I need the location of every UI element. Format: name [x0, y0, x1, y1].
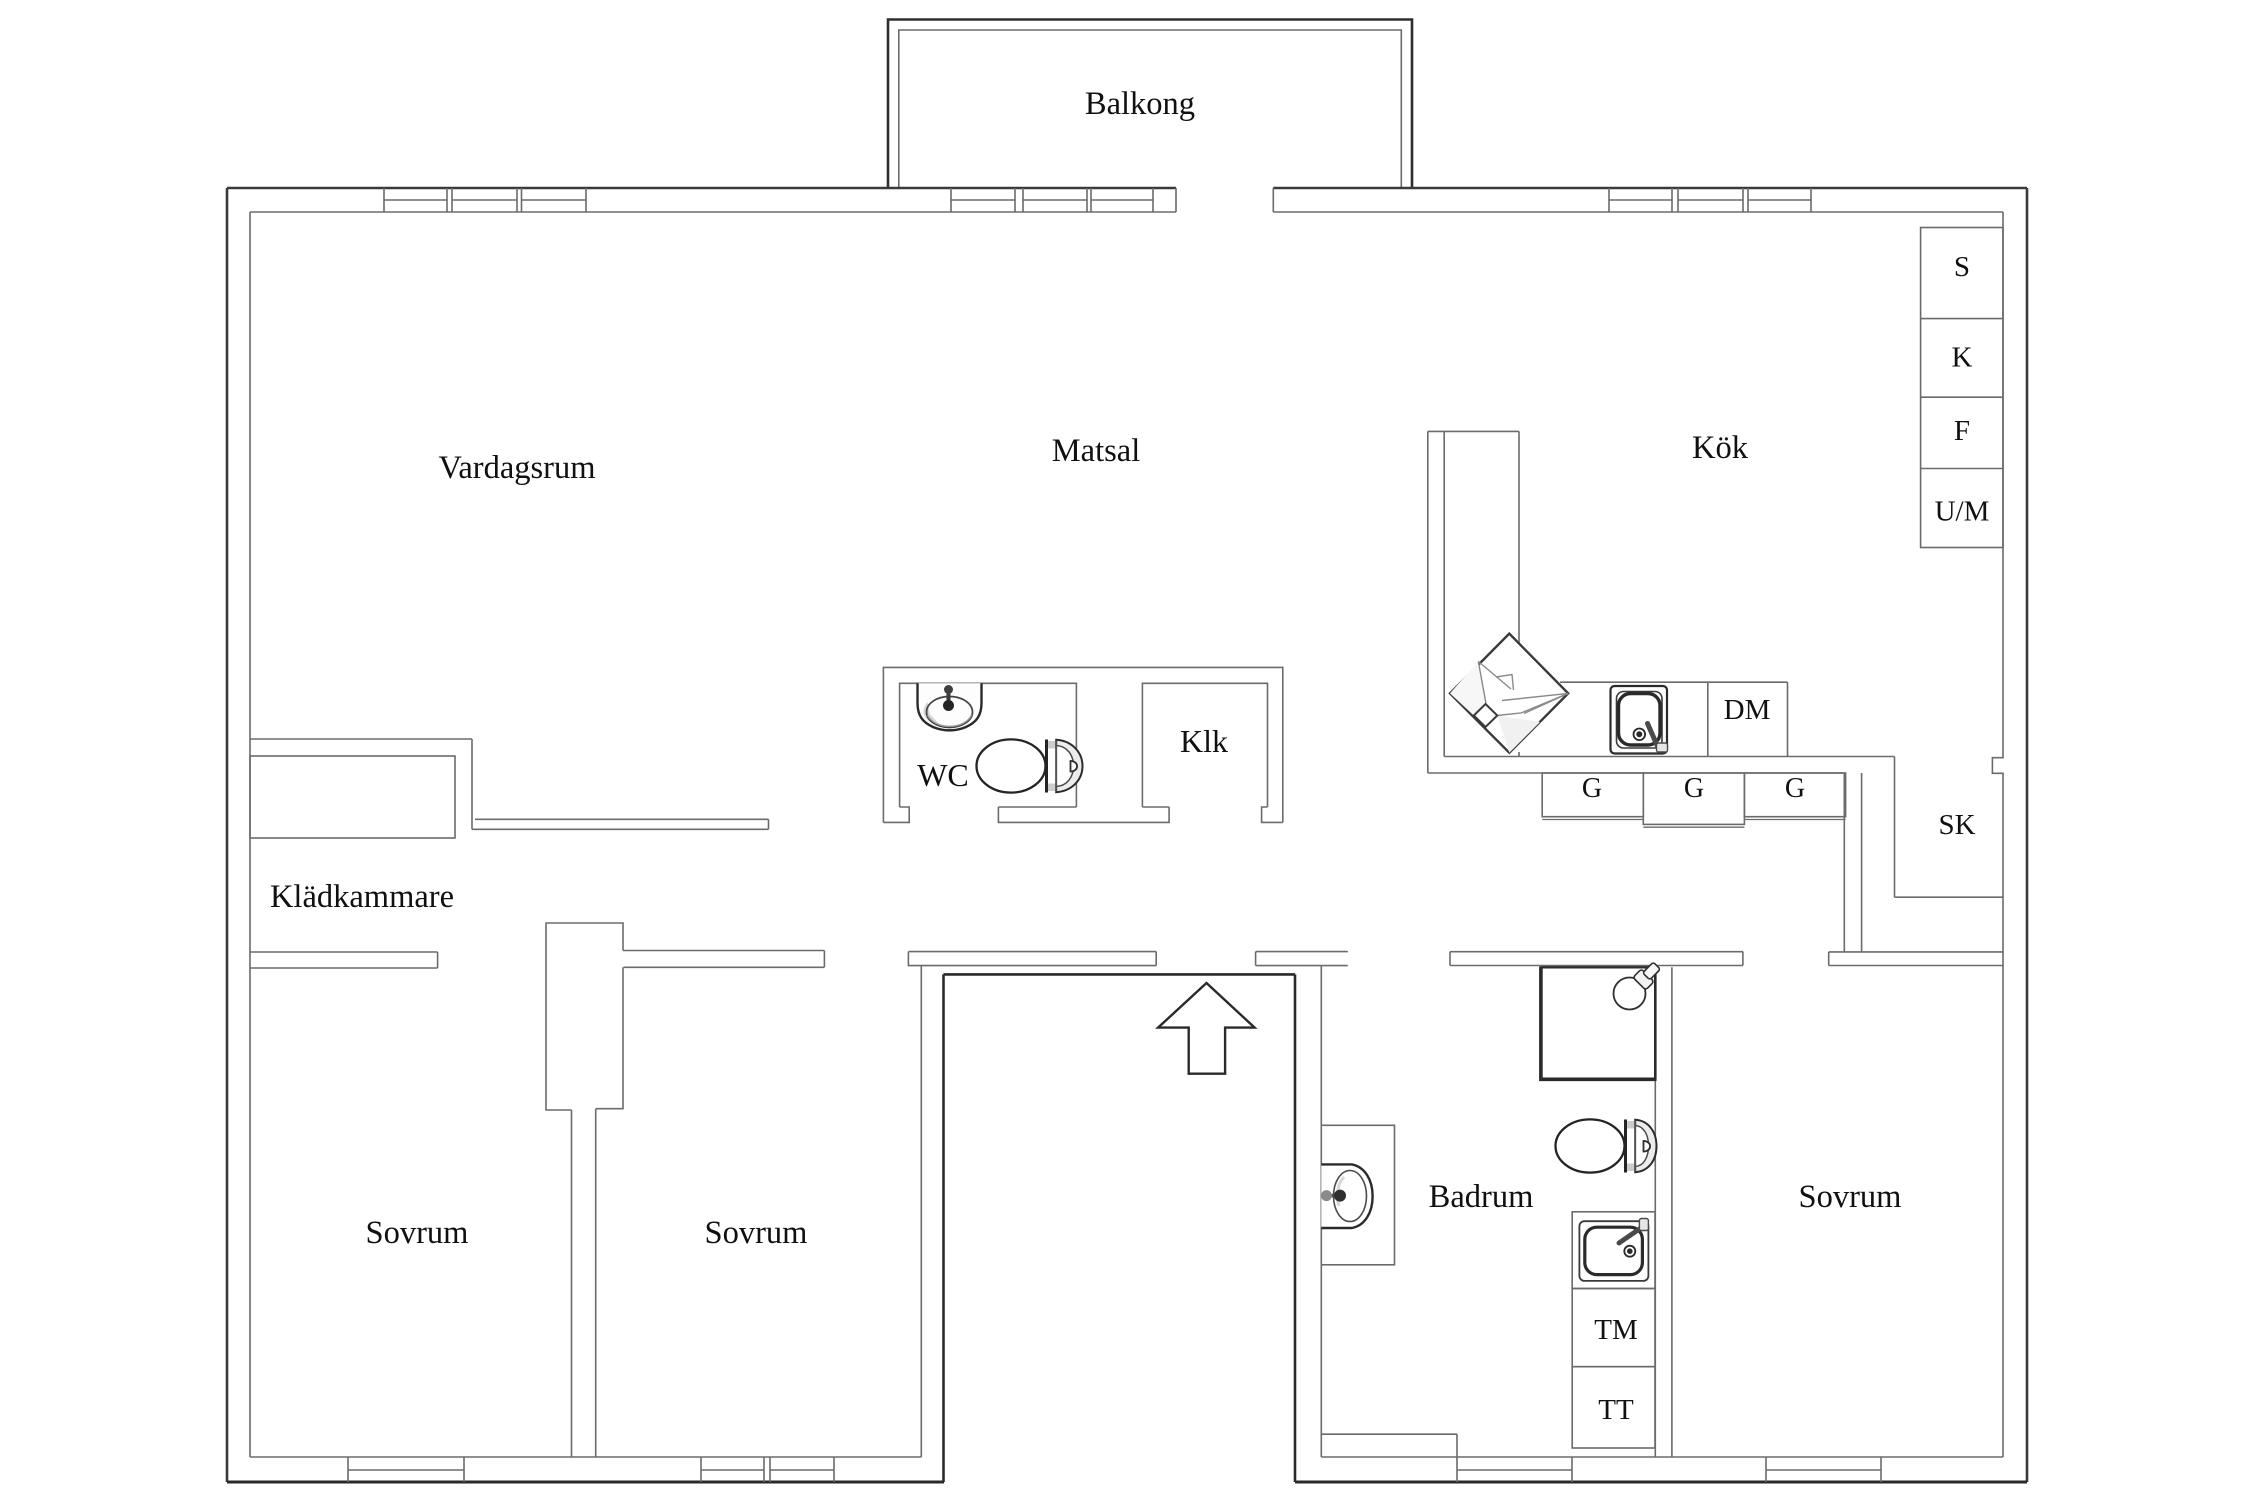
svg-text:SK: SK [1938, 809, 1975, 841]
svg-text:DM: DM [1724, 694, 1771, 726]
svg-text:Badrum: Badrum [1429, 1179, 1534, 1215]
svg-text:Sovrum: Sovrum [366, 1215, 469, 1251]
svg-text:Klädkammare: Klädkammare [270, 879, 454, 915]
svg-text:K: K [1952, 342, 1973, 374]
svg-text:TM: TM [1594, 1314, 1638, 1346]
svg-text:Vardagsrum: Vardagsrum [438, 450, 595, 486]
svg-text:S: S [1954, 251, 1970, 283]
svg-text:WC: WC [917, 757, 969, 793]
svg-text:Sovrum: Sovrum [705, 1215, 808, 1251]
svg-text:G: G [1684, 773, 1704, 804]
svg-text:Klk: Klk [1180, 723, 1228, 759]
svg-text:TT: TT [1598, 1394, 1634, 1426]
svg-text:F: F [1954, 415, 1970, 447]
svg-text:G: G [1582, 773, 1602, 804]
svg-text:Sovrum: Sovrum [1799, 1179, 1902, 1215]
svg-text:Matsal: Matsal [1052, 433, 1140, 469]
svg-text:G: G [1785, 773, 1805, 804]
svg-text:U/M: U/M [1935, 496, 1990, 528]
svg-text:Kök: Kök [1692, 430, 1749, 466]
svg-text:Balkong: Balkong [1085, 86, 1195, 122]
